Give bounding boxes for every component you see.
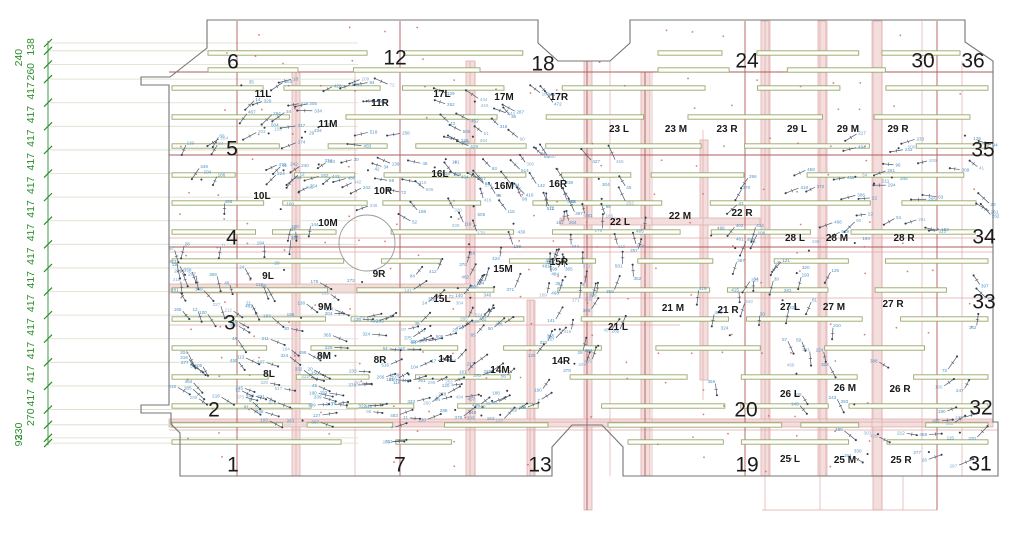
survey-dot bbox=[455, 112, 457, 114]
survey-dot bbox=[474, 406, 476, 408]
measurement-value: 474 bbox=[456, 325, 464, 330]
measurement-point: 306 bbox=[840, 192, 865, 200]
grid-number: 19 bbox=[735, 454, 758, 477]
red-marker-dot bbox=[591, 143, 593, 145]
survey-dot bbox=[386, 403, 388, 405]
measurement-value: 138 bbox=[297, 300, 305, 305]
core-circle-layer bbox=[339, 215, 395, 271]
measurement-point: 72 bbox=[942, 355, 958, 373]
zone-label: 8L bbox=[263, 369, 275, 380]
survey-dot bbox=[472, 219, 474, 221]
measurement-value: 333 bbox=[407, 399, 415, 404]
measurement-value: 239 bbox=[452, 223, 460, 228]
red-marker-dot bbox=[495, 88, 497, 90]
measurement-value: 261 bbox=[991, 209, 999, 214]
red-marker-dot bbox=[294, 355, 296, 357]
grid-number: 18 bbox=[531, 53, 554, 76]
measurement-value: 320 bbox=[260, 380, 268, 385]
measurement-point: 387 bbox=[732, 258, 745, 275]
survey-dot bbox=[478, 394, 480, 396]
red-marker-dot bbox=[723, 405, 725, 407]
beam bbox=[283, 201, 367, 205]
red-marker-dot bbox=[359, 363, 361, 365]
measurement-value: 57 bbox=[782, 337, 788, 342]
zone-label: 14M bbox=[490, 365, 509, 376]
measurement-value: 103 bbox=[260, 417, 268, 422]
survey-dot bbox=[247, 326, 249, 328]
measurement-value: 34 bbox=[383, 165, 389, 170]
survey-dot bbox=[347, 401, 349, 403]
survey-dot bbox=[298, 355, 300, 357]
red-marker-dot bbox=[284, 249, 286, 251]
zone-label: 9R bbox=[373, 269, 387, 280]
measurement-value: 338 bbox=[370, 203, 378, 208]
red-marker-dot bbox=[624, 85, 626, 87]
measurement-value: 260 bbox=[423, 401, 431, 406]
measurement-value: 57 bbox=[169, 246, 175, 251]
measurement-value: 324 bbox=[362, 332, 370, 337]
survey-dot bbox=[445, 376, 447, 378]
measurement-value: 147 bbox=[419, 339, 427, 344]
survey-dot bbox=[632, 264, 634, 266]
survey-dot bbox=[824, 282, 826, 284]
measurement-value: 397 bbox=[575, 211, 583, 216]
survey-dot bbox=[975, 287, 977, 289]
measurement-value: 330 bbox=[854, 449, 862, 454]
survey-dot bbox=[956, 355, 958, 357]
survey-dot bbox=[323, 380, 325, 382]
survey-dot bbox=[804, 350, 806, 352]
measurement-point: 455 bbox=[230, 358, 246, 371]
beam bbox=[801, 423, 859, 427]
beam bbox=[651, 173, 744, 177]
survey-dot bbox=[589, 351, 591, 353]
zone-label: 23 L bbox=[609, 124, 629, 135]
survey-dot bbox=[465, 349, 467, 351]
measurement-point: 229 bbox=[443, 136, 469, 143]
measurement-value: 88 bbox=[496, 193, 502, 198]
dimension-label: 270 bbox=[25, 408, 37, 426]
measurement-point: 219 bbox=[614, 233, 626, 249]
measurement-value: 208 bbox=[382, 440, 390, 445]
measurement-value: 369 bbox=[209, 272, 217, 277]
grid-number: 12 bbox=[383, 47, 406, 70]
survey-dot bbox=[928, 230, 930, 232]
red-marker-dot bbox=[520, 296, 522, 298]
zone-label: 29 L bbox=[787, 124, 807, 135]
red-marker-dot bbox=[727, 433, 729, 435]
measurement-value: 203 bbox=[467, 416, 475, 421]
survey-dot bbox=[215, 325, 217, 327]
zone-label: 11L bbox=[255, 89, 272, 100]
measurement-value: 125 bbox=[528, 353, 536, 358]
measurement-value: 59 bbox=[796, 337, 802, 342]
measurement-point: 416 bbox=[563, 319, 574, 334]
survey-dot bbox=[498, 199, 500, 201]
red-marker-dot bbox=[419, 387, 421, 389]
red-marker-dot bbox=[255, 55, 257, 57]
measurement-value: 109 bbox=[539, 293, 547, 298]
beam bbox=[914, 375, 988, 379]
measurement-value: 365 bbox=[323, 332, 331, 337]
red-marker-dot bbox=[800, 86, 802, 88]
survey-dot bbox=[340, 162, 342, 164]
measurement-value: 317 bbox=[298, 123, 306, 128]
measurement-value: 46 bbox=[422, 161, 428, 166]
survey-dot bbox=[580, 282, 582, 284]
survey-dot bbox=[287, 105, 289, 107]
measurement-value: 370 bbox=[459, 262, 467, 267]
measurement-value: 212 bbox=[897, 430, 905, 435]
measurement-value: 242 bbox=[290, 161, 298, 166]
measurement-value: 100 bbox=[286, 201, 294, 206]
dimension-label: 417 bbox=[25, 247, 37, 265]
survey-dot bbox=[184, 274, 186, 276]
red-marker-dot bbox=[893, 105, 895, 107]
survey-dot bbox=[419, 348, 421, 350]
survey-dot bbox=[562, 306, 564, 308]
survey-dot bbox=[371, 383, 373, 385]
grid-lines-minor-layer bbox=[50, 21, 998, 510]
zone-label: 25 M bbox=[834, 455, 856, 466]
measurement-value: 302 bbox=[284, 79, 292, 84]
red-marker-dot bbox=[864, 334, 866, 336]
measurement-value: 369 bbox=[195, 287, 203, 292]
beam bbox=[885, 259, 988, 263]
red-marker-dot bbox=[531, 323, 533, 325]
measurement-value: 473 bbox=[279, 162, 287, 167]
measurement-value: 370 bbox=[742, 185, 750, 190]
survey-dot bbox=[507, 129, 509, 131]
survey-dot bbox=[394, 373, 396, 375]
survey-dot bbox=[873, 174, 875, 176]
measurement-value: 343 bbox=[745, 299, 753, 304]
measurement-value: 242 bbox=[363, 185, 371, 190]
survey-dot bbox=[385, 334, 387, 336]
survey-dot bbox=[558, 248, 560, 250]
survey-dot bbox=[252, 104, 254, 106]
measurement-point: 370 bbox=[734, 185, 750, 201]
red-marker-dot bbox=[288, 321, 290, 323]
beam bbox=[172, 317, 325, 321]
measurement-point: 324 bbox=[721, 326, 731, 337]
survey-dot bbox=[258, 319, 260, 321]
survey-dot bbox=[739, 301, 741, 303]
survey-dot bbox=[468, 243, 470, 245]
measurement-point: 343 bbox=[739, 299, 753, 317]
survey-dot bbox=[491, 118, 493, 120]
measurement-point: 365 bbox=[323, 332, 347, 342]
survey-dot bbox=[488, 267, 490, 269]
survey-dot bbox=[322, 183, 324, 185]
beam bbox=[825, 346, 925, 350]
survey-dot bbox=[843, 411, 845, 413]
measurement-value: 458 bbox=[807, 167, 815, 172]
measurement-value: 482 bbox=[461, 274, 469, 279]
measurement-value: 505 bbox=[195, 363, 203, 368]
measurement-value: 402 bbox=[736, 223, 744, 228]
dimension-label: 417 bbox=[25, 106, 37, 124]
survey-dot bbox=[710, 235, 712, 237]
red-marker-dot bbox=[590, 416, 592, 418]
measurement-value: 227 bbox=[213, 302, 221, 307]
measurement-value: 466 bbox=[834, 220, 842, 225]
red-marker-dot bbox=[224, 301, 226, 303]
beam bbox=[875, 288, 946, 292]
measurement-point: 247 bbox=[956, 379, 970, 393]
measurement-point: 35 bbox=[240, 80, 254, 87]
survey-dot bbox=[401, 358, 403, 360]
measurement-value: 107 bbox=[399, 327, 407, 332]
measurement-point: 352 bbox=[631, 264, 641, 281]
measurement-point: 397 bbox=[973, 274, 989, 288]
survey-dot bbox=[856, 214, 858, 216]
measurement-value: 514 bbox=[521, 168, 529, 173]
survey-dot bbox=[424, 328, 426, 330]
survey-dot bbox=[472, 136, 474, 138]
measurement-point: 448 bbox=[256, 409, 280, 417]
red-marker-dot bbox=[223, 218, 225, 220]
measurement-value: 63 bbox=[492, 166, 498, 171]
survey-dot bbox=[964, 415, 966, 417]
measurement-value: 405 bbox=[636, 229, 644, 234]
measurement-point: 459 bbox=[919, 432, 942, 437]
red-marker-dot bbox=[703, 414, 705, 416]
measurement-value: 464 bbox=[185, 379, 193, 384]
measurement-value: 440 bbox=[481, 103, 489, 108]
survey-dot bbox=[195, 282, 197, 284]
survey-dot bbox=[443, 161, 445, 163]
measurement-value: 384 bbox=[456, 300, 464, 305]
grid-number: 35 bbox=[971, 139, 994, 162]
red-marker-dot bbox=[768, 415, 770, 417]
measurement-value: 136 bbox=[392, 161, 400, 166]
red-marker-dot bbox=[756, 79, 758, 81]
measurement-value: 271 bbox=[583, 263, 591, 268]
red-marker-dot bbox=[221, 456, 223, 458]
zone-label: 22 R bbox=[731, 208, 753, 219]
measurement-value: 349 bbox=[200, 164, 208, 169]
beam bbox=[353, 68, 480, 72]
survey-dot bbox=[512, 223, 514, 225]
red-marker-dot bbox=[834, 360, 836, 362]
measurement-value: 121 bbox=[782, 258, 790, 263]
measurement-value: 412 bbox=[429, 269, 437, 274]
survey-dot bbox=[622, 251, 624, 253]
survey-dot bbox=[854, 242, 856, 244]
survey-dot bbox=[900, 143, 902, 145]
survey-dot bbox=[483, 274, 485, 276]
red-marker-dot bbox=[418, 254, 420, 256]
survey-dot bbox=[602, 213, 604, 215]
measurement-value: 51 bbox=[484, 131, 490, 136]
survey-dot bbox=[734, 247, 736, 249]
red-marker-dot bbox=[292, 133, 294, 135]
red-marker-dot bbox=[830, 145, 832, 147]
measurement-point: 29 bbox=[301, 130, 315, 138]
beam bbox=[874, 115, 970, 119]
dimension-label: 417 bbox=[25, 224, 37, 242]
measurement-value: 51 bbox=[896, 215, 902, 220]
measurement-value: 104 bbox=[411, 365, 419, 370]
survey-dot bbox=[785, 322, 787, 324]
survey-dot bbox=[473, 205, 475, 207]
measurement-value: 41 bbox=[979, 165, 985, 170]
red-marker-dot bbox=[556, 201, 558, 203]
zone-label: 8M bbox=[317, 351, 331, 362]
beam bbox=[172, 86, 263, 90]
survey-dot bbox=[409, 380, 411, 382]
measurement-value: 505 bbox=[477, 212, 485, 217]
survey-dot bbox=[556, 249, 558, 251]
survey-dot bbox=[200, 178, 202, 180]
red-marker-dot bbox=[625, 361, 627, 363]
measurement-point: 242 bbox=[350, 185, 371, 195]
red-marker-dot bbox=[794, 416, 796, 418]
measurement-point: 61 bbox=[805, 298, 818, 316]
survey-dot bbox=[467, 172, 469, 174]
red-marker-dot bbox=[959, 93, 961, 95]
survey-dot bbox=[179, 277, 181, 279]
survey-dot bbox=[619, 275, 621, 277]
red-marker-dot bbox=[763, 188, 765, 190]
survey-dot bbox=[461, 383, 463, 385]
zone-label: 17R bbox=[550, 92, 569, 103]
survey-dot bbox=[891, 176, 893, 178]
measurement-value: 290 bbox=[306, 185, 314, 190]
measurement-value: 20 bbox=[990, 202, 996, 207]
red-marker-dot bbox=[390, 268, 392, 270]
measurement-value: 306 bbox=[526, 161, 534, 166]
survey-dot bbox=[472, 170, 474, 172]
measurement-value: 257 bbox=[630, 248, 638, 253]
measurement-value: 18 bbox=[293, 76, 299, 81]
measurement-value: 7 bbox=[391, 425, 394, 430]
survey-dot bbox=[598, 178, 600, 180]
measurement-value: 52 bbox=[412, 219, 418, 224]
survey-dot bbox=[941, 433, 943, 435]
survey-dot bbox=[267, 298, 269, 300]
zone-label: 28 L bbox=[785, 233, 805, 244]
zone-label: 16M bbox=[494, 181, 513, 192]
survey-dot bbox=[294, 390, 296, 392]
measurement-value: 295 bbox=[428, 380, 436, 385]
survey-dot bbox=[563, 211, 565, 213]
red-marker-dot bbox=[760, 282, 762, 284]
survey-dot bbox=[862, 461, 864, 463]
measurement-value: 345 bbox=[900, 176, 908, 181]
survey-dot bbox=[465, 89, 467, 91]
measurement-value: 90 bbox=[520, 136, 526, 141]
survey-dot bbox=[873, 183, 875, 185]
measurement-point: 498 bbox=[223, 199, 233, 215]
survey-dot bbox=[526, 403, 528, 405]
survey-dot bbox=[239, 122, 241, 124]
survey-dot bbox=[750, 247, 752, 249]
survey-dot bbox=[289, 406, 291, 408]
survey-dot bbox=[454, 409, 456, 411]
survey-dot bbox=[345, 340, 347, 342]
survey-dot bbox=[381, 412, 383, 414]
measurement-value: 162 bbox=[321, 173, 329, 178]
measurement-value: 219 bbox=[618, 244, 626, 249]
measurement-point: 26 bbox=[922, 454, 943, 463]
survey-dot bbox=[928, 451, 930, 453]
survey-dot bbox=[580, 148, 582, 150]
measurement-point: 152 bbox=[320, 390, 345, 396]
measurement-point: 356 bbox=[708, 379, 718, 396]
grid-number: 20 bbox=[734, 399, 757, 422]
measurement-value: 84 bbox=[753, 276, 759, 281]
survey-dot bbox=[921, 194, 923, 196]
measurement-value: 381 bbox=[555, 281, 563, 286]
measurement-point: 195 bbox=[935, 378, 955, 389]
measurement-value: 385 bbox=[583, 308, 591, 313]
survey-dot bbox=[220, 290, 222, 292]
measurement-value: 162 bbox=[556, 220, 564, 225]
survey-dot bbox=[330, 288, 332, 290]
measurement-value: 178 bbox=[311, 279, 319, 284]
core-opening-circle bbox=[339, 215, 395, 271]
zone-label: 15R bbox=[550, 257, 569, 268]
survey-dot bbox=[212, 184, 214, 186]
survey-dot bbox=[400, 349, 402, 351]
measurement-value: 269 bbox=[478, 404, 486, 409]
measurement-value: 299 bbox=[190, 395, 198, 400]
survey-dot bbox=[805, 313, 807, 315]
measurement-value: 155 bbox=[321, 291, 329, 296]
red-marker-dot bbox=[261, 109, 263, 111]
survey-dot bbox=[806, 413, 808, 415]
survey-dot bbox=[447, 134, 449, 136]
red-marker-dot bbox=[869, 221, 871, 223]
beam bbox=[602, 404, 725, 408]
measurement-point: 90 bbox=[507, 129, 525, 142]
measurement-value: 100 bbox=[199, 310, 207, 315]
survey-dot bbox=[796, 272, 798, 274]
red-marker-dot bbox=[453, 200, 455, 202]
measurement-value: 229 bbox=[461, 138, 469, 143]
measurement-value: 461 bbox=[736, 236, 744, 241]
survey-dot bbox=[469, 297, 471, 299]
measurement-value: 204 bbox=[569, 220, 577, 225]
red-marker-dot bbox=[360, 380, 362, 382]
red-marker-dot bbox=[416, 27, 418, 29]
survey-dot bbox=[472, 307, 474, 309]
red-marker-dot bbox=[687, 78, 689, 80]
survey-dot bbox=[248, 331, 250, 333]
red-marker-dot bbox=[249, 374, 251, 376]
zone-label: 14L bbox=[438, 354, 455, 365]
dimension-chain: 1382402604174174174174174174174174174174… bbox=[13, 38, 52, 447]
beam bbox=[445, 423, 548, 427]
survey-dot bbox=[480, 415, 482, 417]
survey-dot bbox=[304, 131, 306, 133]
measurement-point: 381 bbox=[555, 276, 566, 286]
survey-dot bbox=[459, 385, 461, 387]
measurement-value: 115 bbox=[507, 209, 515, 214]
red-marker-dot bbox=[769, 137, 771, 139]
survey-dot bbox=[601, 198, 603, 200]
survey-dot bbox=[510, 159, 512, 161]
measurement-value: 188 bbox=[513, 244, 521, 249]
red-marker-dot bbox=[928, 332, 930, 334]
measurement-value: 35 bbox=[249, 80, 255, 85]
measurement-value: 22 bbox=[868, 211, 874, 216]
survey-dot bbox=[432, 378, 434, 380]
beam bbox=[741, 440, 848, 444]
survey-dot bbox=[308, 235, 310, 237]
